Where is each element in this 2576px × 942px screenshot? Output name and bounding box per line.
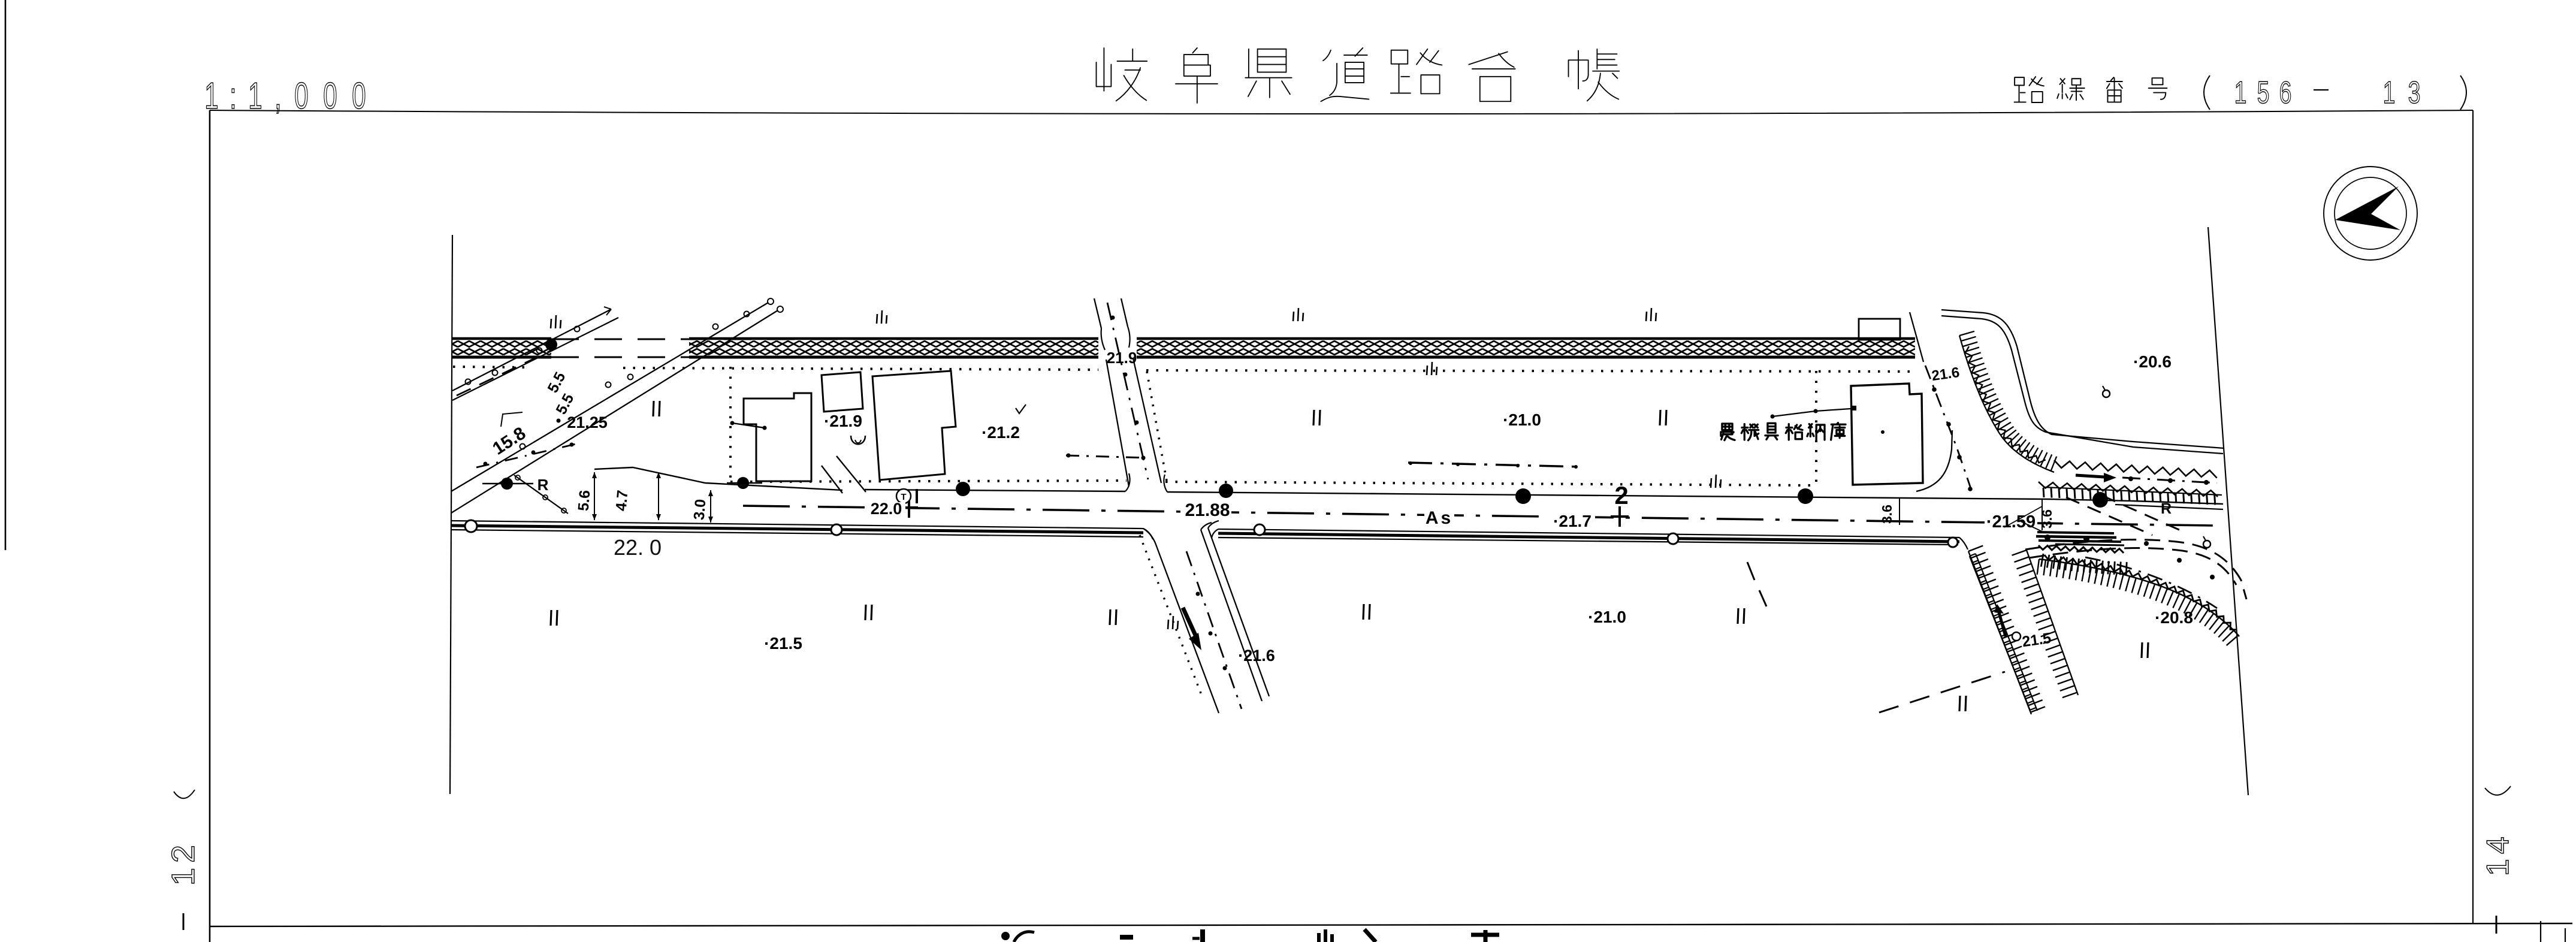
svg-text:1: 1 — [248, 76, 262, 117]
svg-text:·21.0: ·21.0 — [1503, 410, 1541, 429]
svg-text:·21.2: ·21.2 — [982, 423, 1020, 442]
svg-text:·20.8: ·20.8 — [2155, 608, 2193, 627]
svg-text:3.0: 3.0 — [691, 499, 709, 521]
svg-text:1: 1 — [2383, 75, 2396, 110]
svg-text:R: R — [537, 476, 549, 494]
svg-text:6: 6 — [2279, 75, 2292, 110]
svg-text:1: 1 — [204, 76, 218, 117]
svg-text:·21.5: ·21.5 — [764, 634, 802, 653]
svg-text:,: , — [274, 76, 282, 117]
svg-text:As: As — [1426, 508, 1453, 528]
svg-text:R: R — [2161, 500, 2172, 517]
svg-text:12: 12 — [165, 840, 201, 886]
svg-text:4.7: 4.7 — [613, 490, 632, 512]
svg-text:21.88: 21.88 — [1185, 500, 1230, 520]
svg-text:3.6: 3.6 — [1879, 505, 1895, 524]
svg-text:·21.59: ·21.59 — [1986, 512, 2036, 532]
svg-text:0: 0 — [294, 76, 308, 117]
svg-text:·20.6: ·20.6 — [2133, 352, 2172, 371]
svg-text:·21.0: ·21.0 — [1588, 608, 1626, 626]
svg-text:5.6: 5.6 — [575, 490, 594, 512]
svg-text:14: 14 — [2481, 832, 2515, 876]
svg-text:22.0: 22.0 — [871, 500, 902, 518]
svg-text:3.6: 3.6 — [2039, 509, 2055, 529]
svg-text:·21.9: ·21.9 — [824, 412, 862, 430]
svg-text:22. 0: 22. 0 — [614, 535, 662, 560]
svg-text::: : — [229, 76, 237, 117]
svg-text:2: 2 — [1614, 481, 1628, 509]
svg-text:0: 0 — [352, 76, 366, 117]
svg-text:5: 5 — [2257, 75, 2270, 110]
svg-text:3: 3 — [2408, 75, 2421, 110]
svg-text:0: 0 — [323, 76, 337, 117]
svg-text:1: 1 — [2234, 75, 2247, 110]
svg-text:·21.7: ·21.7 — [1553, 512, 1591, 530]
